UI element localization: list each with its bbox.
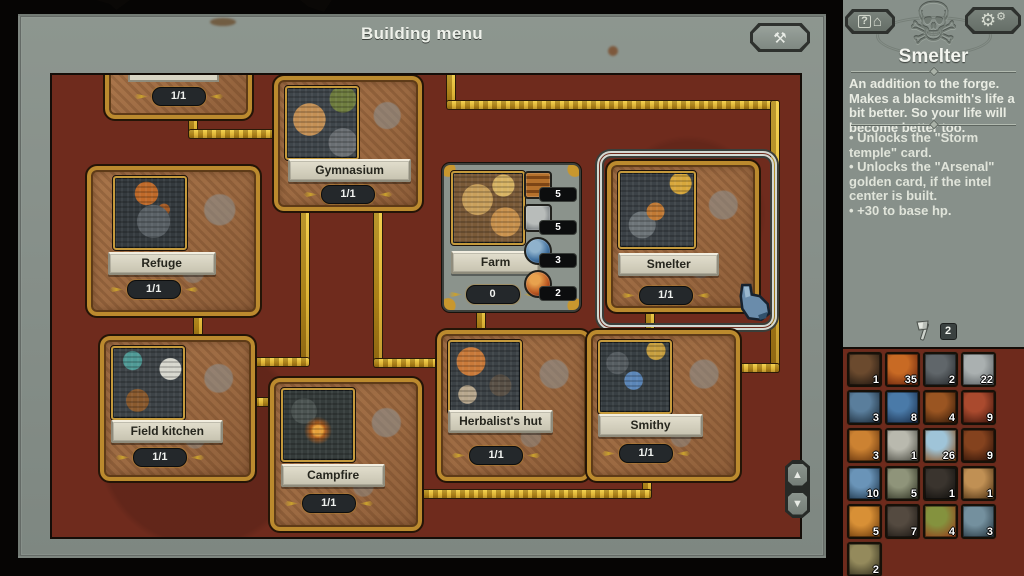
item-count: 35 <box>905 374 917 386</box>
farm-image <box>451 171 525 245</box>
cost-row: 2 <box>524 270 576 303</box>
item-count: 22 <box>981 374 993 386</box>
cost-row: 5 <box>524 171 576 204</box>
item-count: 1 <box>873 374 879 386</box>
building-card-campfire[interactable]: Campfire 1/1 <box>270 378 422 531</box>
building-card-field-kitchen[interactable]: Field kitchen 1/1 <box>100 336 255 481</box>
effect-item: • Unlocks the "Storm temple" card. <box>849 131 1020 160</box>
inventory-slot-stone[interactable]: 22 <box>961 352 996 387</box>
building-label: Gymnasium <box>288 159 412 182</box>
inventory-slot-arrows[interactable]: 5 <box>885 466 920 501</box>
build-count-badge: 1/1 <box>321 185 375 204</box>
axe-icon <box>911 320 937 342</box>
inventory-slot-roots[interactable]: 1 <box>847 352 882 387</box>
item-count: 10 <box>867 488 879 500</box>
inventory-grid: 1352223849312691051157432 <box>847 352 1022 576</box>
building-card-farm[interactable]: Farm 0 5 5 3 2 <box>442 163 581 312</box>
build-count-badge: 1/1 <box>619 444 673 463</box>
item-count: 2 <box>873 564 879 576</box>
connector-line <box>247 358 309 366</box>
inventory-slot-gear-skull[interactable]: 2 <box>847 542 882 576</box>
divider <box>851 68 1016 75</box>
item-count: 4 <box>949 412 955 424</box>
window-title: Building menu <box>20 24 824 44</box>
inventory-slot-herbs[interactable]: 4 <box>923 504 958 539</box>
crack-decoration <box>96 0 130 10</box>
item-count: 3 <box>987 526 993 538</box>
building-label: Herbalist's hut <box>448 410 553 433</box>
gear-small-icon: ⚙ <box>996 10 1006 23</box>
crack-decoration <box>296 0 336 12</box>
inventory-slot-coal[interactable]: 2 <box>923 352 958 387</box>
inventory-slot-crystal[interactable]: 3 <box>847 390 882 425</box>
item-count: 3 <box>873 412 879 424</box>
item-count: 5 <box>911 488 917 500</box>
building-card-gymnasium[interactable]: Gymnasium 1/1 <box>274 76 422 211</box>
building-label: Refuge <box>108 252 216 275</box>
question-mark-icon: ? <box>858 15 871 28</box>
building-card-smithy[interactable]: Smithy 1/1 <box>587 330 740 481</box>
smelter-image <box>618 171 696 249</box>
scroll-up-icon[interactable]: ▲ <box>788 464 807 486</box>
building-effects-list: • Unlocks the "Storm temple" card. • Unl… <box>849 131 1020 218</box>
connector-line <box>374 359 441 367</box>
build-count-badge: 1/1 <box>469 446 523 465</box>
cost-row: 3 <box>524 237 576 270</box>
refuge-image <box>113 176 187 250</box>
cost-value: 2 <box>540 287 576 300</box>
inventory-slot-dark-fist[interactable]: 1 <box>923 466 958 501</box>
item-count: 1 <box>949 488 955 500</box>
hammer-wrench-icon: ⚒ <box>773 29 786 47</box>
building-label: Campfire <box>281 464 385 487</box>
scrollbar[interactable]: ▲ ▼ <box>785 460 810 518</box>
building-label <box>128 73 218 82</box>
build-count-badge: 0 <box>466 285 520 304</box>
tool-count-badge: 2 <box>940 323 957 340</box>
herbalist-hut-image <box>448 340 522 414</box>
connector-line <box>374 199 382 365</box>
build-mode-button[interactable]: ⚒ <box>750 23 810 52</box>
connector-line <box>447 101 779 109</box>
item-count: 5 <box>873 526 879 538</box>
inventory-slot-chest-eye[interactable]: 26 <box>923 428 958 463</box>
build-count-badge: 1/1 <box>639 286 693 305</box>
connector-line <box>301 199 309 364</box>
cost-value: 3 <box>540 254 576 267</box>
selected-building-title: Smelter <box>843 46 1024 68</box>
building-menu-panel: Building menu ⚒ 1/1 Gymnasium <box>18 14 826 558</box>
card-info-sidebar: ☠ ? ⌂ ⚙ ⚙ Smelter An addition to the for… <box>843 0 1024 576</box>
build-count-badge: 1/1 <box>127 280 181 299</box>
campfire-image <box>281 388 355 462</box>
building-card-partial[interactable]: 1/1 <box>105 73 252 119</box>
inventory-slot-fang[interactable]: 1 <box>961 466 996 501</box>
item-count: 4 <box>949 526 955 538</box>
item-count: 7 <box>911 526 917 538</box>
cost-value: 5 <box>540 188 576 201</box>
building-label: Smelter <box>618 253 719 276</box>
house-icon: ⌂ <box>873 14 882 29</box>
build-count-badge: 1/1 <box>152 87 206 106</box>
farm-cost-list: 5 5 3 2 <box>524 171 576 303</box>
help-button[interactable]: ? ⌂ <box>845 9 895 34</box>
connector-line <box>415 490 651 498</box>
smithy-image <box>598 340 672 414</box>
divider <box>851 121 1016 128</box>
field-kitchen-image <box>111 346 185 420</box>
inventory-slot-water-orb[interactable]: 8 <box>885 390 920 425</box>
gymnasium-image <box>285 86 359 160</box>
item-count: 3 <box>873 450 879 462</box>
inventory-slot-claw[interactable]: 4 <box>923 390 958 425</box>
cost-value: 5 <box>540 221 576 234</box>
rust-stain <box>210 18 236 26</box>
settings-button[interactable]: ⚙ ⚙ <box>965 7 1021 34</box>
gauntlet-cursor-icon <box>736 283 774 325</box>
item-count: 1 <box>987 488 993 500</box>
inventory-slot-horn[interactable]: 9 <box>961 428 996 463</box>
rust-stain <box>608 46 618 56</box>
inventory-slot-skull[interactable]: 1 <box>885 428 920 463</box>
building-card-smelter-selected[interactable]: Smelter 1/1 <box>597 151 777 330</box>
item-count: 1 <box>911 450 917 462</box>
inventory-slot-paw[interactable]: 7 <box>885 504 920 539</box>
item-count: 9 <box>987 412 993 424</box>
inventory-slot-shell[interactable]: 3 <box>961 504 996 539</box>
item-count: 2 <box>949 374 955 386</box>
connector-line <box>189 130 282 138</box>
build-tree-area: 1/1 Gymnasium 1/1 Refuge 1/1 Farm 0 5 <box>50 73 802 539</box>
effect-item: • +30 to base hp. <box>849 204 1020 219</box>
item-count: 26 <box>943 450 955 462</box>
building-label: Smithy <box>598 414 703 437</box>
item-count: 9 <box>987 450 993 462</box>
build-count-badge: 1/1 <box>302 494 356 513</box>
scroll-down-icon[interactable]: ▼ <box>788 493 807 515</box>
effect-item: • Unlocks the "Arsenal" golden card, if … <box>849 160 1020 204</box>
inventory-slot-orange-globe[interactable]: 5 <box>847 504 882 539</box>
inventory-slot-copper-ore[interactable]: 9 <box>961 390 996 425</box>
inventory-slot-amber-orb[interactable]: 3 <box>847 428 882 463</box>
tool-counter: 2 <box>843 320 1024 342</box>
inventory-slot-raw-meat[interactable]: 35 <box>885 352 920 387</box>
building-card-herbalist-hut[interactable]: Herbalist's hut 1/1 <box>437 330 590 481</box>
inventory-slot-blue-sphere[interactable]: 10 <box>847 466 882 501</box>
build-count-badge: 1/1 <box>133 448 187 467</box>
building-card-refuge[interactable]: Refuge 1/1 <box>87 166 260 316</box>
cost-row: 5 <box>524 204 576 237</box>
building-label: Field kitchen <box>111 420 223 443</box>
gear-icon: ⚙ <box>980 10 996 31</box>
item-count: 8 <box>911 412 917 424</box>
